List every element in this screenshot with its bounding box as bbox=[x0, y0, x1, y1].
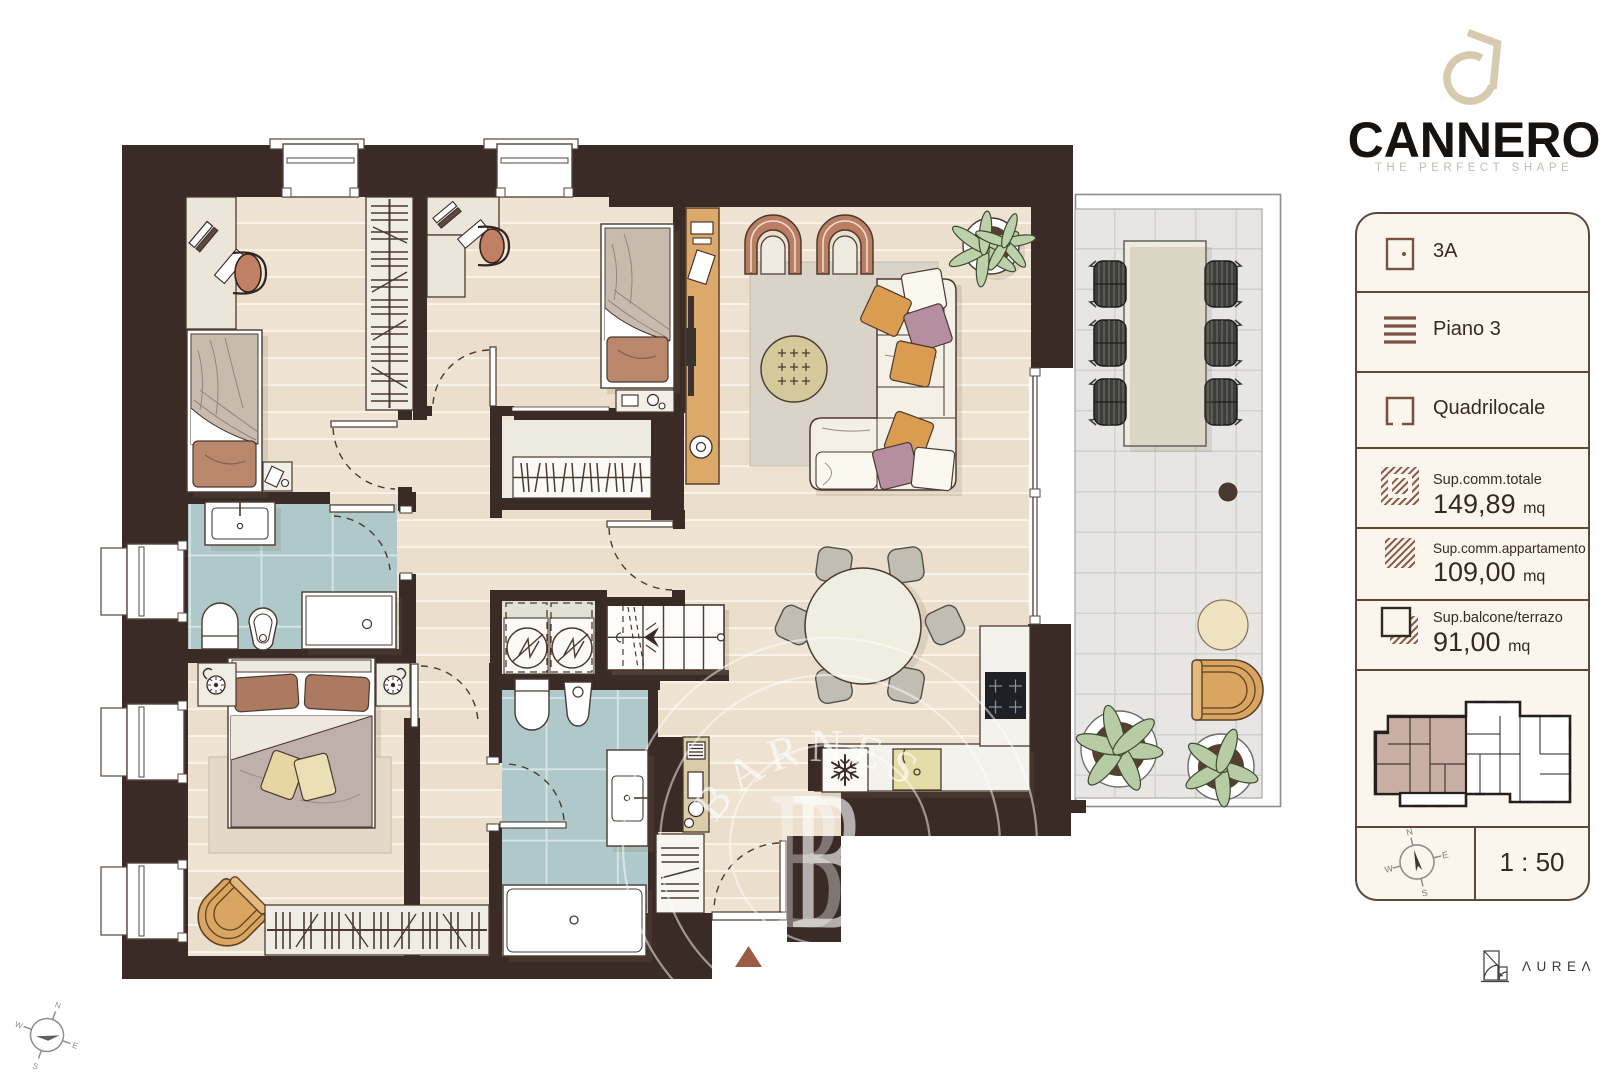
svg-text:E: E bbox=[71, 1041, 79, 1051]
svg-text:N: N bbox=[1405, 826, 1414, 837]
svg-text:N: N bbox=[54, 1000, 63, 1011]
svg-text:E: E bbox=[1441, 849, 1449, 860]
svg-text:S: S bbox=[1421, 887, 1429, 898]
svg-text:B: B bbox=[790, 750, 867, 971]
svg-text:W: W bbox=[1384, 863, 1395, 875]
svg-text:S: S bbox=[31, 1061, 39, 1071]
svg-text:W: W bbox=[14, 1020, 25, 1031]
